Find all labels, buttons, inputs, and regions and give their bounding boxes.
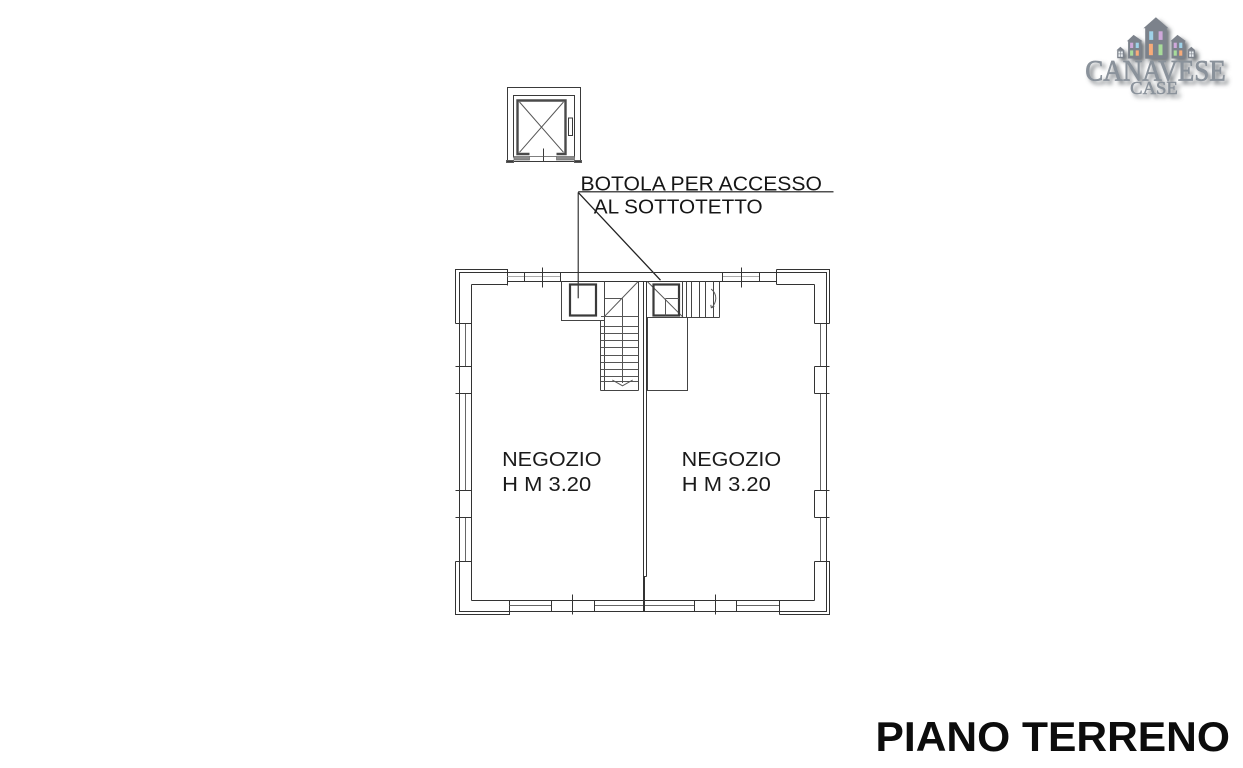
svg-text:NEGOZIO: NEGOZIO: [682, 448, 782, 471]
svg-text:PIANO TERRENO: PIANO TERRENO: [876, 713, 1231, 760]
svg-text:AL SOTTOTETTO: AL SOTTOTETTO: [594, 196, 763, 219]
svg-text:NEGOZIO: NEGOZIO: [502, 448, 601, 471]
svg-text:H M 3.20: H M 3.20: [502, 473, 591, 496]
svg-text:CASE: CASE: [1130, 78, 1178, 98]
svg-text:H M 3.20: H M 3.20: [682, 473, 771, 496]
